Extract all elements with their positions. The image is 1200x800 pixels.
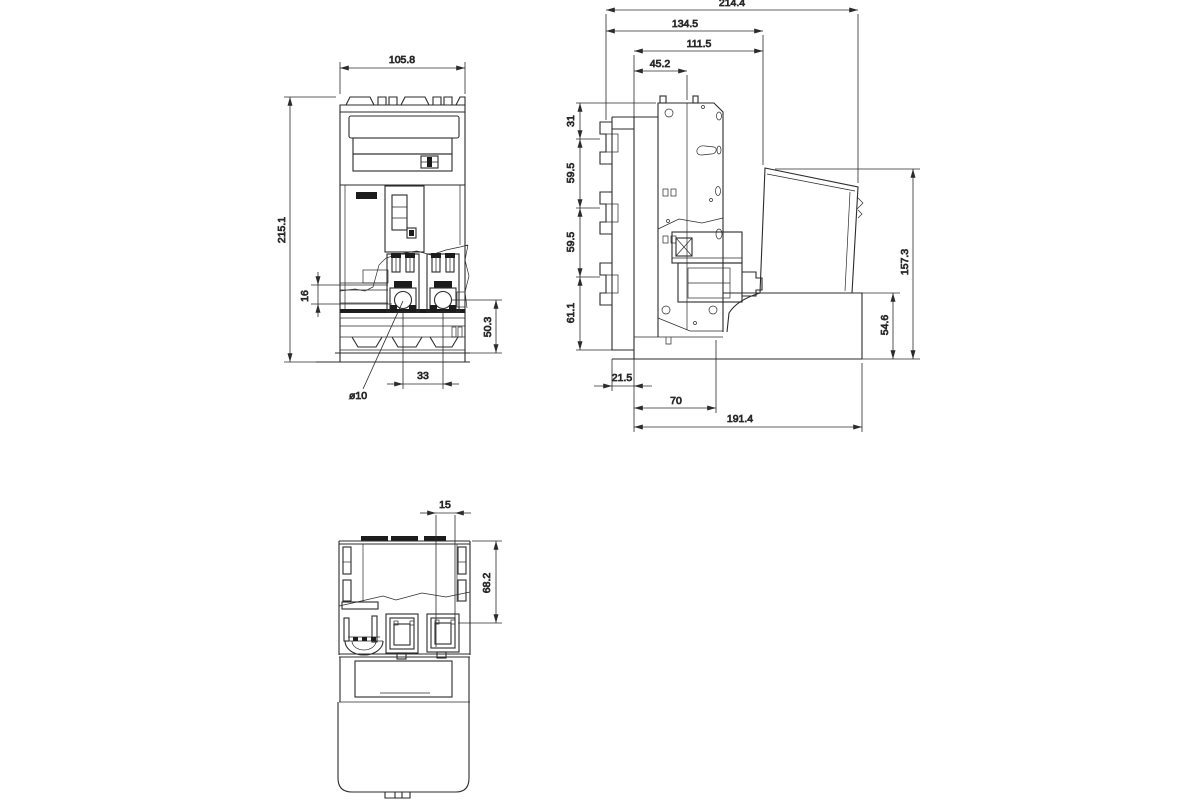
dim-bottom-terminal-depth: 68.2 [458, 541, 502, 623]
dim-label: 61.1 [565, 303, 577, 324]
dim-side-rail-offset: 21.5 [594, 359, 652, 432]
side-view-body [600, 96, 863, 359]
bottom-terminal-port-left [386, 614, 418, 659]
dim-label: 21.5 [612, 372, 633, 384]
dim-side-handle-height: 157.3 [775, 169, 920, 359]
front-label-plate [356, 192, 377, 199]
dim-front-overall-height: 215.1 [276, 97, 336, 362]
dim-label: 68.2 [481, 573, 493, 594]
dim-side-inner-depth: 111.5 [634, 38, 763, 117]
dim-side-overall-depth: 214.4 [606, 0, 858, 183]
dim-label: 45.2 [650, 58, 671, 70]
dim-label: 59.5 [565, 163, 577, 184]
dim-side-upper-depth: 134.5 [606, 18, 763, 165]
dim-label: 31 [565, 115, 577, 127]
plate-holes [658, 106, 723, 325]
dimension-drawing-canvas: 105.8 215.1 16 50.3 33 ø10 [0, 0, 1200, 800]
dim-label: 59.5 [565, 232, 577, 253]
bottom-view: 15 68.2 [338, 499, 502, 798]
dim-label: 157.3 [899, 249, 911, 275]
bottom-left-detail [342, 602, 383, 655]
dim-front-overall-width: 105.8 [340, 54, 465, 94]
front-terminal-right [427, 253, 465, 312]
dim-label: ø10 [349, 390, 367, 402]
dim-label: 15 [439, 499, 451, 511]
dim-side-left-chain: 31 59.5 59.5 61.1 [565, 103, 656, 350]
dim-label: 214.4 [719, 0, 745, 9]
dimension-drawing-page: 105.8 215.1 16 50.3 33 ø10 [0, 0, 1200, 800]
dim-label: 105.8 [389, 54, 415, 66]
dim-side-plate-depth: 45.2 [634, 58, 687, 100]
dim-front-terminal-spacing: 33 [387, 309, 459, 389]
front-terminal-left [387, 253, 419, 312]
dim-label: 33 [417, 370, 429, 382]
dim-side-mounting-depth: 191.4 [634, 363, 862, 432]
dim-label: 16 [299, 290, 311, 302]
dim-side-base-depth: 70 [634, 340, 716, 413]
bottom-view-body [338, 536, 470, 798]
side-mechanism [634, 232, 762, 344]
dim-label: 134.5 [672, 18, 698, 30]
dim-label: 191.4 [727, 413, 753, 425]
dim-label: 215.1 [276, 217, 288, 243]
side-view: 214.4 134.5 111.5 45.2 31 59.5 59.5 61.1 [565, 0, 920, 432]
front-view: 105.8 215.1 16 50.3 33 ø10 [276, 54, 502, 402]
dim-front-hole-diameter: ø10 [349, 301, 403, 402]
dim-label: 50.3 [482, 317, 494, 338]
bottom-terminal-port-right [427, 614, 459, 658]
dim-side-base-front-height: 54.6 [862, 293, 900, 359]
dim-label: 111.5 [687, 38, 712, 50]
dim-bottom-slot-width: 15 [420, 499, 471, 647]
dim-label: 70 [670, 395, 682, 407]
dim-label: 54.6 [879, 315, 891, 336]
front-switch-indicator-icon [421, 156, 438, 168]
side-fuse-handle [760, 168, 863, 293]
